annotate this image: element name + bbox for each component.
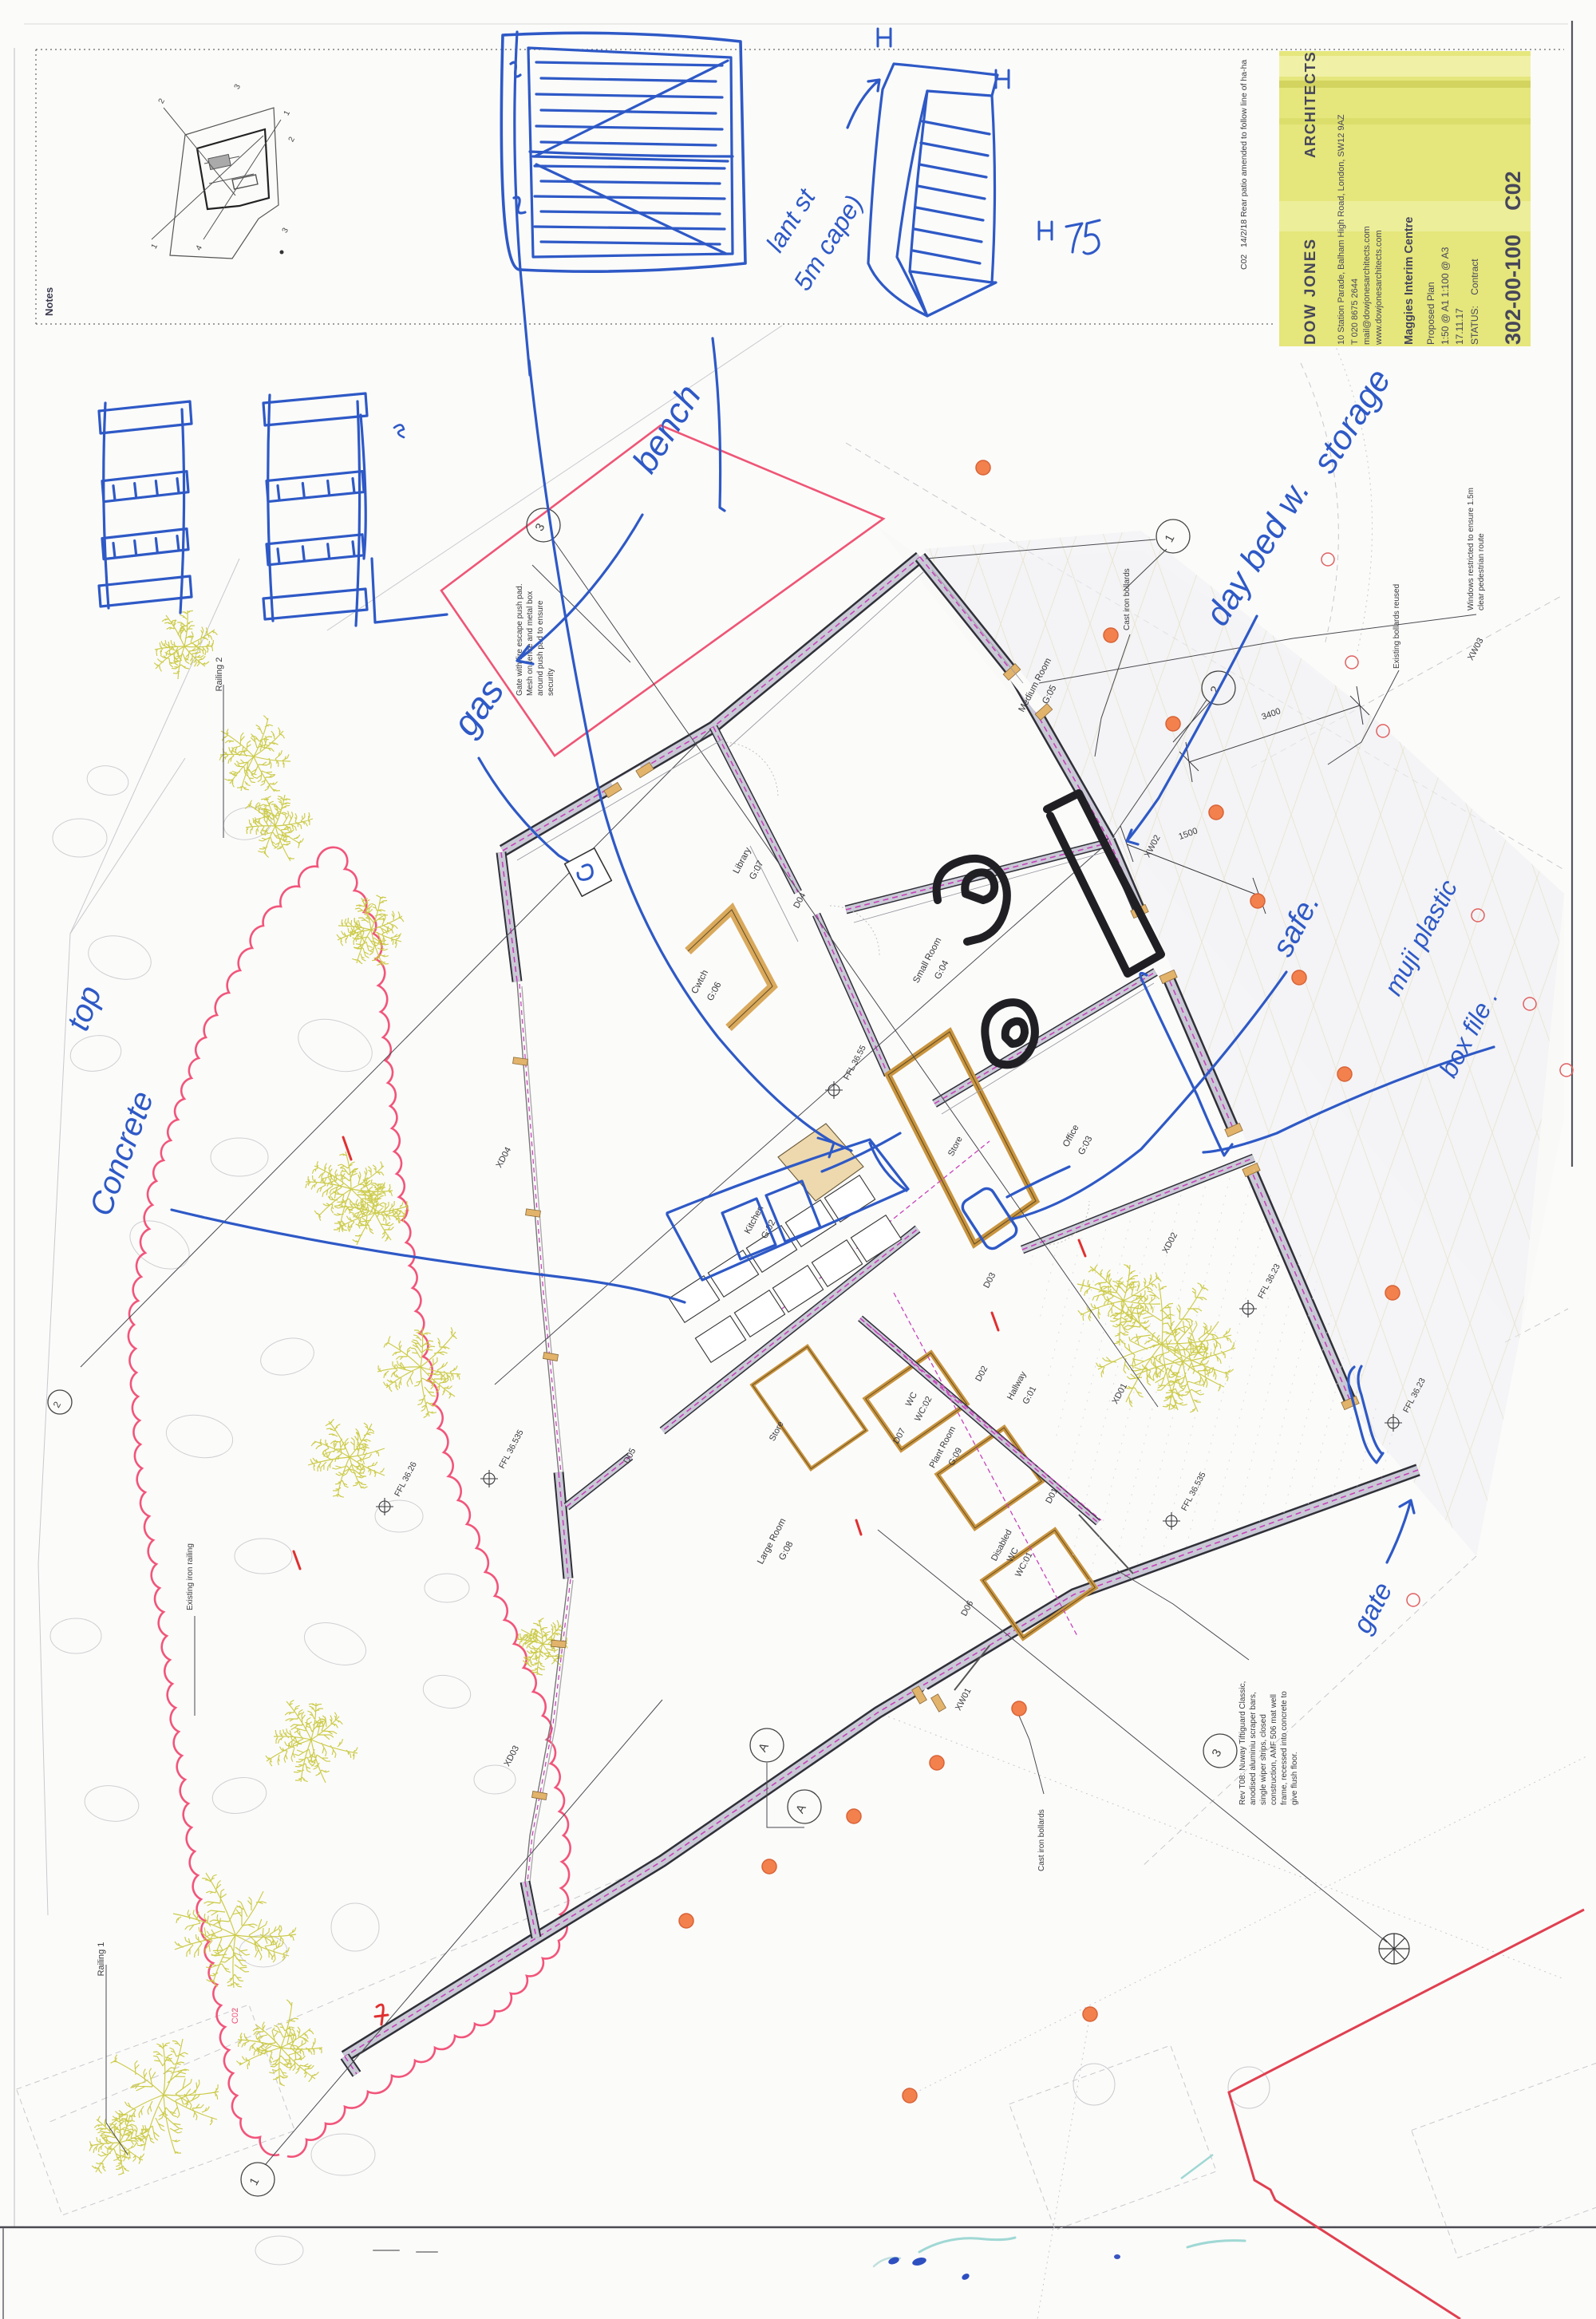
svg-text:10 Station Parade, Balham High: 10 Station Parade, Balham High Road, Lon… [1337, 114, 1346, 345]
svg-text:Railing 2: Railing 2 [215, 658, 224, 692]
svg-text:single wiper strips, closed: single wiper strips, closed [1259, 1714, 1268, 1805]
svg-text:www.dowjonesarchitects.com: www.dowjonesarchitects.com [1374, 230, 1384, 346]
svg-text:clear pedestrian route: clear pedestrian route [1477, 533, 1486, 610]
svg-text:Gate with fire escape push pad: Gate with fire escape push pad. [516, 583, 524, 696]
svg-text:Notes: Notes [43, 287, 55, 316]
svg-text:C02: C02 [231, 2008, 240, 2024]
svg-text:anodised aluminiu scraper bars: anodised aluminiu scraper bars, [1249, 1692, 1258, 1805]
svg-text:STATUS: Contract: STATUS: Contract [1469, 259, 1480, 345]
svg-text:construction, AMF 506 mat well: construction, AMF 506 mat well [1270, 1694, 1278, 1805]
svg-text:Proposed Plan: Proposed Plan [1425, 282, 1436, 345]
svg-text:around push pad to ensure: around push pad to ensure [536, 600, 545, 696]
svg-text:give flush floor.: give flush floor. [1290, 1752, 1299, 1805]
svg-text:mail@dowjonesarchitects.com: mail@dowjonesarchitects.com [1362, 226, 1372, 345]
svg-text:1:50 @ A1 1:100 @ A3: 1:50 @ A1 1:100 @ A3 [1440, 247, 1451, 345]
svg-text:Existing bollards reused: Existing bollards reused [1393, 584, 1401, 669]
svg-text:Existing iron railing: Existing iron railing [186, 1543, 195, 1610]
svg-text:T 020 8675 2644: T 020 8675 2644 [1350, 279, 1360, 345]
svg-text:Railing 1: Railing 1 [97, 1942, 106, 1977]
svg-text:Cast iron bollards: Cast iron bollards [1123, 568, 1132, 630]
svg-text:Cast iron bollards: Cast iron bollards [1037, 1809, 1046, 1871]
svg-text:17.11.17: 17.11.17 [1454, 308, 1465, 345]
svg-text:C02 14/2/18 Rear patio amend: C02 14/2/18 Rear patio amended to follow… [1239, 60, 1249, 270]
svg-text:ARCHITECTS: ARCHITECTS [1302, 51, 1318, 158]
svg-text:frame, recessed into concrete: frame, recessed into concrete to [1280, 1691, 1289, 1805]
svg-text:Windows restricted to ensure 1: Windows restricted to ensure 1.5m [1467, 488, 1476, 610]
svg-text:DOW JONES: DOW JONES [1302, 238, 1319, 345]
svg-text:security: security [547, 669, 555, 696]
svg-text:Maggies Interim Centre: Maggies Interim Centre [1403, 217, 1416, 345]
svg-text:Mesh on fence and metal box: Mesh on fence and metal box [526, 591, 535, 696]
svg-text:302-00-100 C02: 302-00-100 C02 [1501, 171, 1525, 345]
svg-text:Rev T08: Nuway Tiftiguard Clas: Rev T08: Nuway Tiftiguard Classic, [1238, 1681, 1247, 1805]
